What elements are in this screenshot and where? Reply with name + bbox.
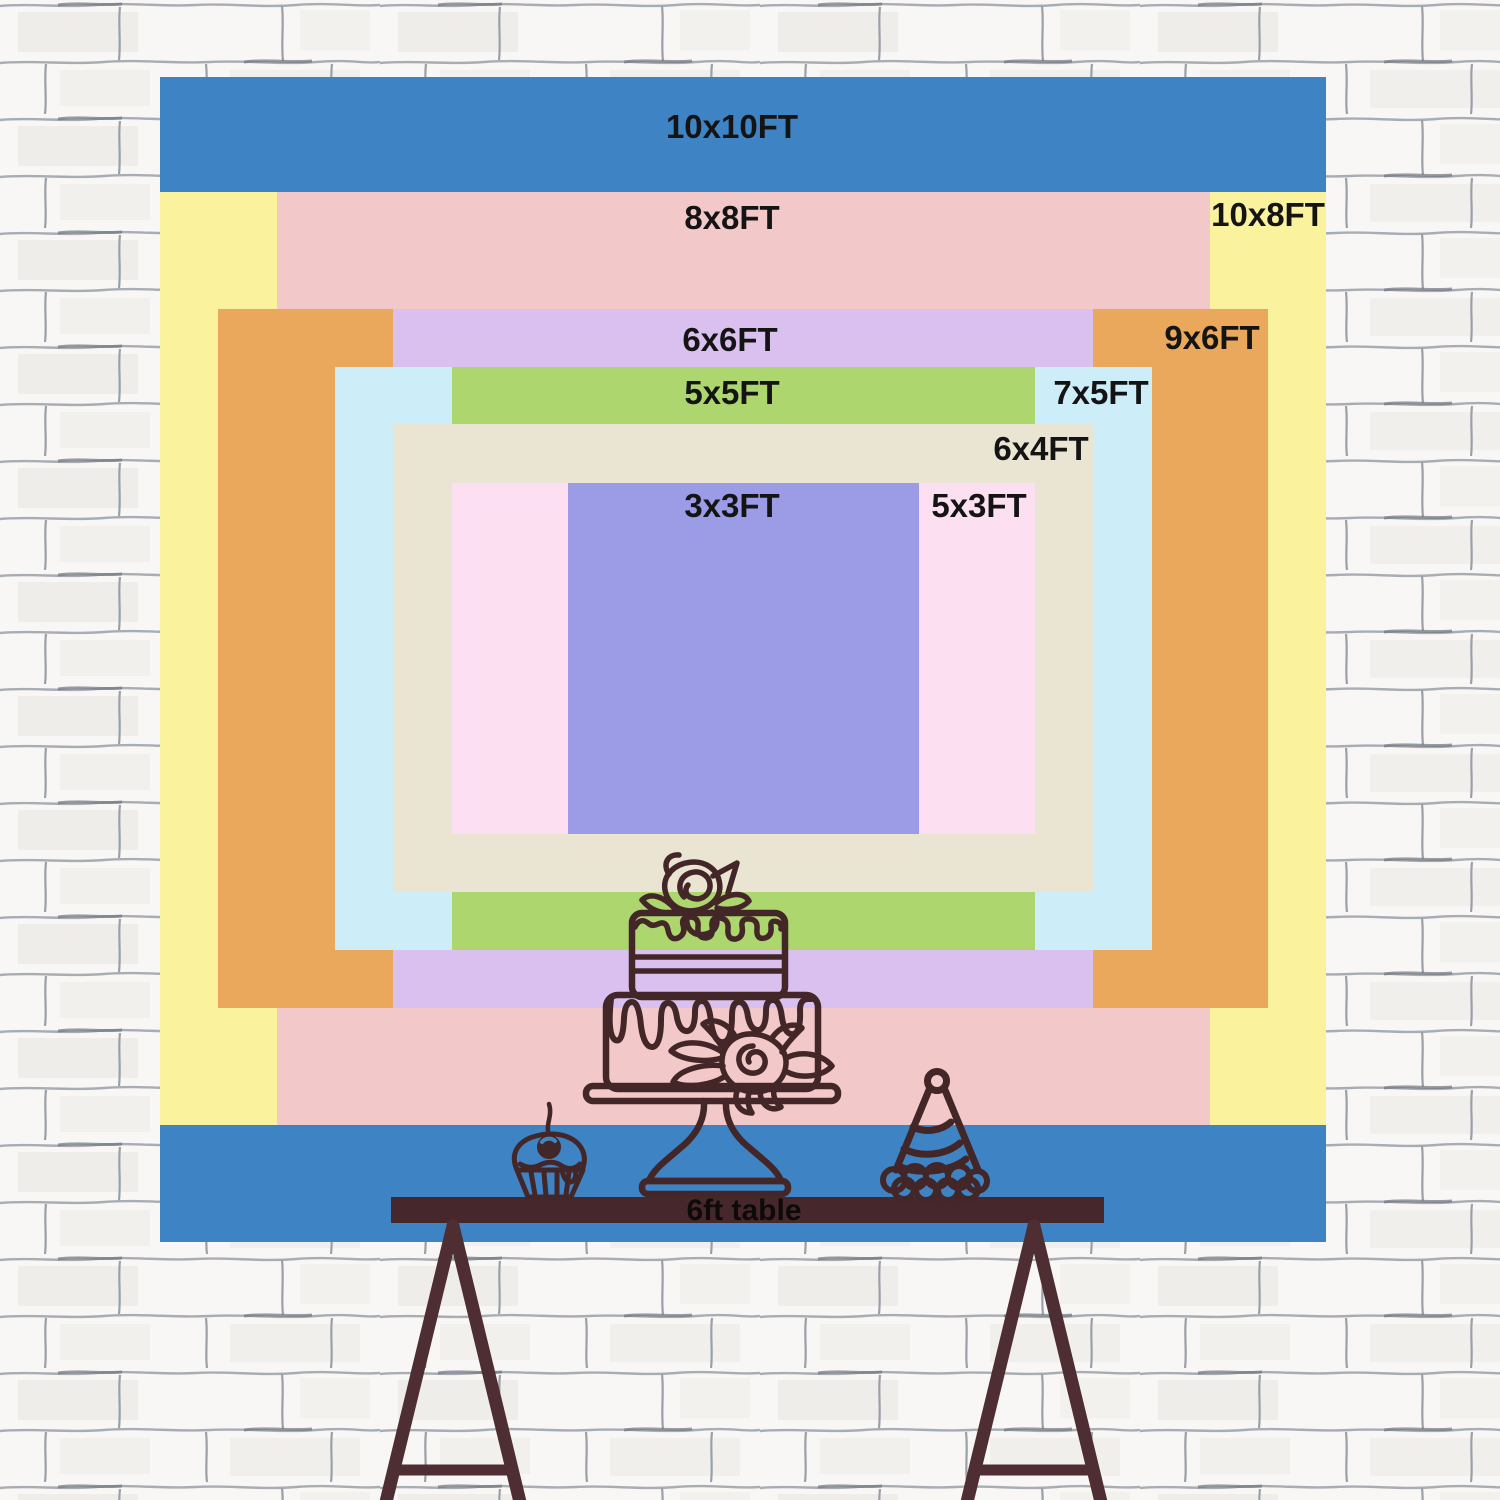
party-hat-icon [883,1072,987,1201]
table-leg-right [967,1226,1101,1500]
cherry-stem [548,1104,550,1135]
table-leg-left [386,1226,520,1500]
table-size-label: 6ft table [686,1194,801,1228]
cake-stand-base [642,1181,788,1194]
cupcake-icon [514,1104,584,1197]
birthday-cake-icon [586,855,838,1194]
cake-stand-stem [649,1101,781,1181]
foreground-artwork [0,0,1500,1500]
backdrop-size-chart: 10x10FT 10x8FT 8x8FT 9x6FT 6x6FT 7x5FT 5… [0,0,1500,1500]
table [386,1197,1104,1500]
